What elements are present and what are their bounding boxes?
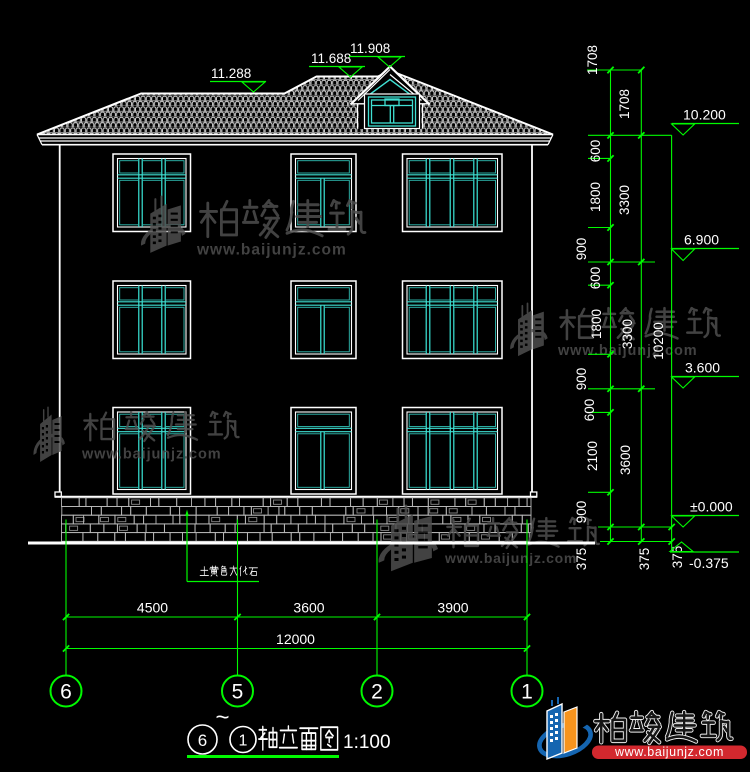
- svg-text:1: 1: [521, 681, 533, 704]
- svg-text:900: 900: [574, 368, 589, 391]
- svg-text:900: 900: [574, 501, 589, 524]
- svg-text:10200: 10200: [651, 322, 666, 360]
- svg-text:5: 5: [232, 681, 244, 704]
- svg-text:6: 6: [198, 731, 207, 750]
- svg-text:375: 375: [574, 548, 589, 571]
- svg-text:11.288: 11.288: [211, 66, 251, 81]
- svg-text:3600: 3600: [293, 600, 324, 616]
- svg-text:3900: 3900: [437, 600, 468, 616]
- svg-text:1708: 1708: [585, 45, 600, 75]
- svg-text:~: ~: [215, 704, 229, 731]
- svg-text:10.200: 10.200: [683, 107, 726, 123]
- svg-text:1800: 1800: [589, 309, 604, 339]
- svg-text:±0.000: ±0.000: [690, 499, 733, 515]
- svg-text:6.900: 6.900: [684, 232, 719, 248]
- svg-text:375: 375: [637, 548, 652, 571]
- svg-text:11.908: 11.908: [350, 41, 390, 56]
- svg-text:-0.375: -0.375: [689, 555, 729, 571]
- svg-text:2100: 2100: [585, 441, 600, 471]
- svg-text:www.baijunjz.com: www.baijunjz.com: [81, 447, 222, 463]
- svg-text:600: 600: [588, 267, 603, 290]
- svg-text:11.688: 11.688: [311, 51, 351, 66]
- svg-text:4500: 4500: [137, 600, 168, 616]
- svg-text:2: 2: [371, 681, 383, 704]
- svg-text:600: 600: [582, 399, 597, 422]
- svg-text:1:100: 1:100: [343, 732, 391, 753]
- svg-text:1: 1: [239, 733, 248, 750]
- svg-text:600: 600: [588, 140, 603, 163]
- svg-text:1708: 1708: [617, 89, 632, 119]
- svg-text:1800: 1800: [588, 182, 603, 212]
- svg-text:3.600: 3.600: [685, 360, 720, 376]
- svg-text:12000: 12000: [276, 631, 315, 647]
- svg-text:3600: 3600: [618, 445, 633, 475]
- svg-text:www.baijunjz.com: www.baijunjz.com: [614, 745, 724, 759]
- svg-text:6: 6: [60, 681, 72, 704]
- svg-text:3300: 3300: [617, 185, 632, 215]
- svg-text:900: 900: [574, 238, 589, 261]
- svg-text:www.baijunjz.com: www.baijunjz.com: [444, 550, 577, 566]
- svg-text:www.baijunjz.com: www.baijunjz.com: [196, 242, 347, 259]
- svg-text:3300: 3300: [620, 319, 635, 349]
